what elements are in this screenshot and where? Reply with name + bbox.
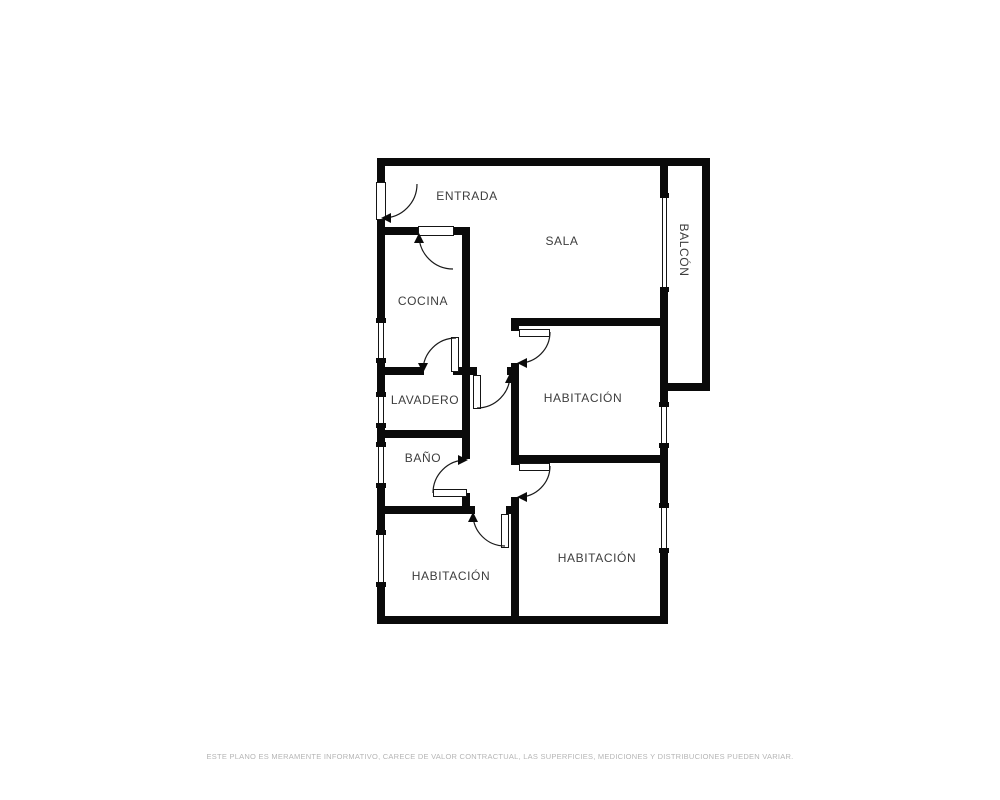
- room-label-balcon: BALCÓN: [677, 224, 691, 277]
- door-cocina-bottom-opening: [424, 367, 453, 375]
- window-lavadero: [376, 392, 386, 428]
- wall-lavadero-bano: [377, 430, 470, 438]
- window-cap: [376, 582, 386, 587]
- window-habitacion2: [659, 503, 669, 553]
- window-pane: [662, 198, 667, 287]
- door-habitacion3-opening: [475, 506, 506, 514]
- door-habitacion3-leaf: [501, 514, 509, 548]
- window-habitacion3: [376, 530, 386, 587]
- window-cap: [659, 548, 669, 553]
- floor-plan: ENTRADA SALA BALCÓN COCINA LAVADERO BAÑO…: [0, 0, 1000, 800]
- window-habitacion1: [659, 402, 669, 448]
- door-bano-opening: [462, 459, 470, 493]
- door-habitacion2-leaf: [519, 463, 550, 471]
- window-pane: [378, 323, 384, 358]
- room-label-habitacion1: HABITACIÓN: [544, 391, 622, 405]
- window-pane: [661, 508, 667, 548]
- window-cap: [376, 358, 386, 363]
- door-corridor-arc: [477, 375, 510, 408]
- door-arcs-svg: [0, 0, 1000, 800]
- room-label-cocina: COCINA: [398, 294, 448, 308]
- room-label-habitacion2: HABITACIÓN: [558, 551, 636, 565]
- door-entrada-arc: [383, 184, 417, 218]
- window-cocina: [376, 318, 386, 363]
- window-pane: [378, 535, 384, 582]
- room-label-habitacion3: HABITACIÓN: [412, 569, 490, 583]
- wall-balcony-bottom: [660, 383, 710, 391]
- door-cocina-top-leaf: [418, 226, 454, 236]
- door-habitacion2-opening: [511, 465, 519, 497]
- window-cap: [660, 287, 669, 292]
- window-bano: [376, 442, 386, 488]
- window-cap: [659, 443, 669, 448]
- room-label-lavadero: LAVADERO: [391, 393, 459, 407]
- door-habitacion1-leaf: [519, 329, 550, 337]
- disclaimer-text: ESTE PLANO ES MERAMENTE INFORMATIVO, CAR…: [0, 752, 1000, 761]
- door-cocina-bottom-leaf: [451, 337, 459, 372]
- door-corridor-leaf: [473, 375, 481, 409]
- window-pane: [378, 397, 384, 423]
- wall-bottom: [377, 616, 668, 624]
- door-habitacion1-opening: [511, 331, 519, 363]
- window-pane: [378, 447, 384, 483]
- window-cap: [376, 483, 386, 488]
- window-pane: [661, 407, 667, 443]
- door-corridor-opening: [477, 367, 507, 375]
- door-bano-leaf: [433, 489, 467, 497]
- room-label-bano: BAÑO: [405, 451, 441, 465]
- wall-habitacion1-habitacion2: [511, 455, 668, 463]
- door-entrada-leaf: [376, 182, 386, 220]
- door-cocina-top-arc: [419, 235, 453, 269]
- room-label-entrada: ENTRADA: [436, 189, 498, 203]
- wall-sala-bottom: [511, 318, 668, 326]
- wall-balcony-right: [702, 158, 710, 391]
- room-label-sala: SALA: [545, 234, 578, 248]
- window-cap: [376, 423, 386, 428]
- window-balcon: [660, 193, 669, 292]
